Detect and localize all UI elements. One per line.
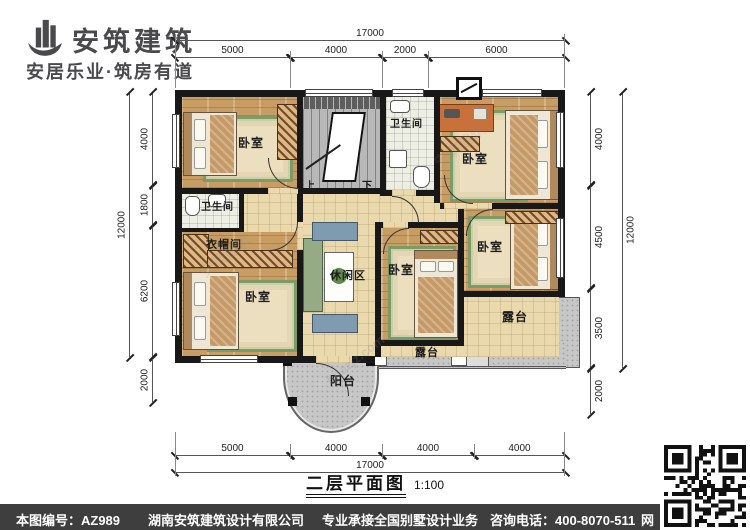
pillow — [194, 316, 206, 340]
bed-headboard — [184, 273, 192, 349]
sofa — [312, 222, 358, 241]
bed-top-left — [183, 112, 237, 176]
drawing-title: 二层平面图 — [306, 474, 406, 498]
dim-right-seg3: 3500 — [590, 288, 591, 368]
door-opening — [316, 356, 352, 363]
desk-papers — [473, 108, 487, 120]
dim-value: 17000 — [175, 28, 565, 39]
room-label-terrace-bottom: 露台 — [415, 344, 439, 360]
extension-line — [564, 34, 565, 88]
window — [172, 282, 180, 336]
balcony-post — [288, 397, 297, 406]
room-label-balcony: 阳台 — [330, 372, 356, 389]
dim-left-seg1: 4000 — [152, 92, 153, 185]
dim-value: 4000 — [140, 127, 151, 149]
logo-building-icon — [22, 12, 68, 60]
dim-value: 4000 — [594, 127, 605, 149]
dim-value: 6200 — [140, 280, 151, 302]
wall — [458, 291, 565, 297]
dim-value: 4000 — [474, 443, 565, 454]
dim-value: 4000 — [382, 443, 474, 454]
wardrobe — [505, 211, 559, 224]
washing-machine — [389, 150, 407, 168]
room-label-bathroom-left: 卫生间 — [201, 198, 234, 213]
logo-tagline: 安居乐业·筑房有道 — [26, 58, 194, 84]
room-label-bedroom-right: 卧室 — [477, 238, 503, 255]
footer-service: 专业承接全国别墅设计业务 — [322, 510, 478, 529]
room-label-bedroom-top-left: 卧室 — [238, 134, 264, 151]
bed-headboard — [184, 113, 192, 175]
wardrobe — [420, 230, 460, 244]
dim-top-seg1: 5000 — [175, 57, 290, 58]
sofa — [303, 238, 323, 312]
wall — [434, 96, 440, 203]
flue-vent-symbol — [456, 77, 482, 100]
balcony-post — [361, 397, 370, 406]
window — [482, 89, 542, 97]
room-label-bedroom-center: 卧室 — [388, 261, 414, 278]
desk-monitor — [444, 109, 460, 118]
extension-line — [428, 51, 429, 88]
dim-top-seg3: 2000 — [382, 57, 428, 58]
dim-top-seg4: 6000 — [428, 57, 565, 58]
dim-bottom-seg4: 4000 — [474, 455, 565, 456]
bed-top-right — [505, 110, 559, 200]
pillow — [438, 261, 454, 272]
wall — [239, 192, 244, 232]
dim-bottom-seg3: 4000 — [382, 455, 474, 456]
wardrobe — [207, 250, 293, 268]
bed-blanket — [418, 277, 454, 333]
pillow — [420, 261, 436, 272]
dim-right-overall: 12000 — [622, 92, 623, 368]
drawing-scale: 1:100 — [414, 478, 444, 492]
dim-value: 5000 — [175, 45, 290, 56]
dim-right-seg4: 2000 — [590, 368, 591, 414]
dim-left-seg3: 6200 — [152, 225, 153, 357]
extension-line — [290, 444, 291, 459]
stair-label-down: 下 — [362, 177, 373, 192]
dim-top-seg2: 4000 — [290, 57, 382, 58]
qr-code-pattern — [663, 445, 747, 527]
door-opening — [268, 188, 298, 194]
sofa — [312, 314, 358, 333]
room-label-bedroom-bottom-left: 卧室 — [245, 288, 271, 305]
door-opening — [297, 222, 303, 250]
window — [172, 114, 180, 168]
dim-value: 5000 — [175, 443, 290, 454]
toilet — [413, 166, 430, 188]
dim-value: 3500 — [594, 317, 605, 339]
wall — [458, 203, 464, 346]
wall — [380, 96, 386, 196]
dim-bottom-seg1: 5000 — [175, 455, 290, 456]
toilet — [185, 196, 200, 216]
footer-web-badge: 网 — [641, 510, 654, 529]
wall — [181, 228, 242, 232]
dim-top-overall: 17000 — [175, 40, 565, 41]
pillow — [194, 119, 206, 141]
dim-right-seg2: 4500 — [590, 185, 591, 288]
dim-bottom-seg2: 4000 — [290, 455, 382, 456]
room-label-leisure: 休闲区 — [330, 267, 366, 283]
dim-value: 2000 — [140, 368, 151, 390]
qr-code — [660, 442, 750, 530]
dim-right-seg1: 4000 — [590, 92, 591, 185]
stair-top-rail — [303, 96, 380, 109]
bed-blanket — [514, 218, 538, 286]
window — [200, 355, 258, 363]
extension-line — [382, 51, 383, 88]
wardrobe — [277, 104, 299, 160]
desk — [438, 104, 494, 132]
window — [392, 89, 424, 97]
bed-blanket — [510, 115, 538, 195]
footer-company: 湖南安筑建筑设计有限公司 — [148, 510, 304, 529]
dim-value: 12000 — [626, 216, 637, 244]
floor-plan-page: { "logo": { "name": "安筑建筑", "tagline": "… — [0, 0, 750, 530]
pillow — [194, 282, 206, 306]
bed-headboard — [415, 251, 457, 259]
dim-left-seg2: 1800 — [152, 185, 153, 225]
bed-blanket — [210, 276, 236, 346]
bed-center — [414, 250, 458, 338]
pillow — [194, 147, 206, 169]
drawing-title-block: 二层平面图1:100 — [0, 469, 750, 494]
window — [305, 89, 373, 97]
footer-drawing-no: 本图编号：AZ989 — [16, 510, 120, 529]
sink — [390, 100, 410, 113]
room-label-bathroom-top: 卫生间 — [390, 115, 423, 130]
dim-value: 4000 — [290, 443, 382, 454]
bed-right — [510, 214, 559, 290]
footer-phone: 咨询电话：400-8070-511 — [490, 510, 635, 529]
wall — [375, 222, 381, 357]
window — [556, 112, 564, 168]
bed-blanket — [210, 115, 234, 173]
dim-value: 2000 — [594, 380, 605, 402]
dim-value: 4000 — [290, 45, 382, 56]
dim-value: 1800 — [140, 194, 151, 216]
extension-line — [290, 51, 291, 88]
dim-value: 2000 — [382, 45, 428, 56]
window — [556, 218, 564, 278]
dim-left-overall: 12000 — [129, 92, 130, 357]
room-label-closet: 衣帽间 — [206, 236, 242, 252]
stair-label-up: 上 — [305, 177, 316, 192]
extension-line — [474, 444, 475, 459]
bed-bottom-left — [183, 272, 239, 350]
room-label-bedroom-top-right: 卧室 — [462, 150, 488, 167]
door-opening — [392, 190, 416, 196]
extension-line — [175, 34, 176, 88]
wall — [297, 188, 303, 357]
room-label-terrace-right: 露台 — [502, 308, 528, 325]
extension-line — [382, 444, 383, 459]
flue-diagonal — [461, 83, 478, 93]
dim-value: 12000 — [117, 211, 128, 239]
dim-left-seg4: 2000 — [152, 357, 153, 402]
dim-value: 6000 — [428, 45, 565, 56]
footer-bar: 本图编号：AZ989 湖南安筑建筑设计有限公司 专业承接全国别墅设计业务 咨询电… — [0, 504, 750, 530]
dim-value: 4500 — [594, 225, 605, 247]
